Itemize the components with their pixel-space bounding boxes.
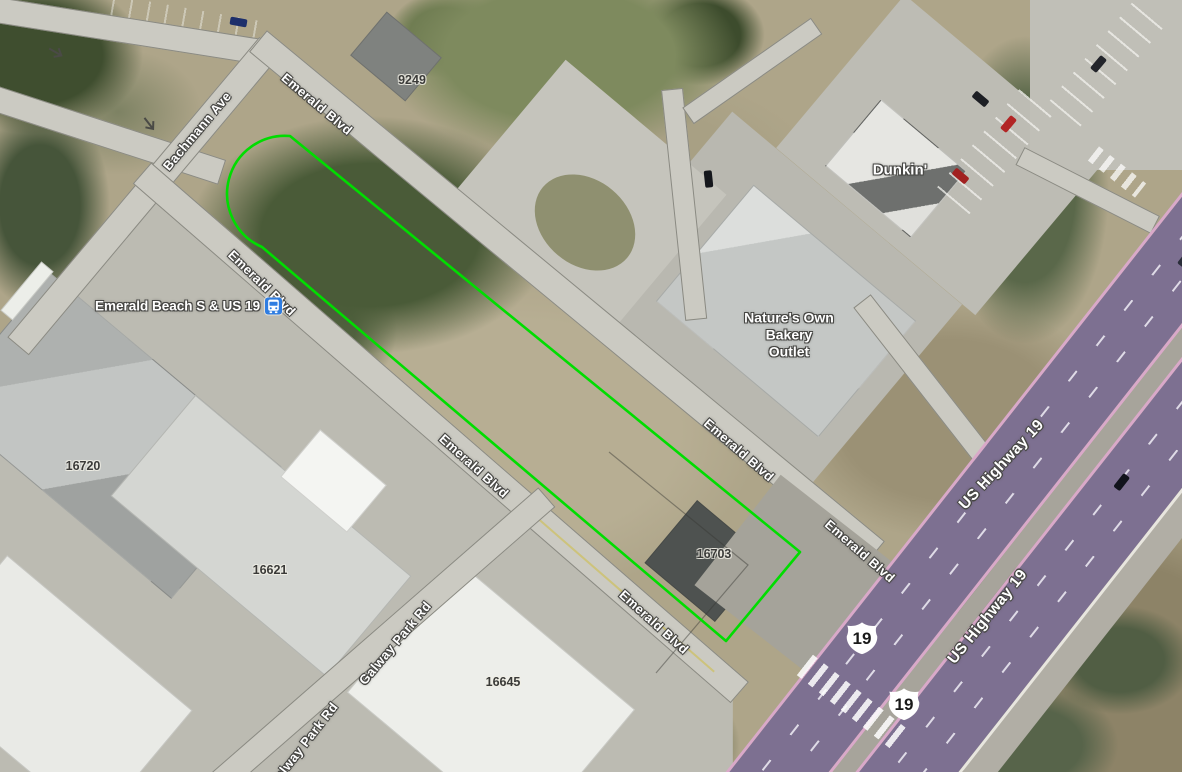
transit-stop: Emerald Beach S & US 19 [95, 298, 282, 315]
route-number: 19 [842, 619, 882, 657]
address-label-16720: 16720 [66, 459, 101, 473]
transit-stop-label: Emerald Beach S & US 19 [95, 299, 260, 314]
address-label-16621: 16621 [253, 563, 288, 577]
vehicle [704, 170, 714, 188]
us-route-19-shield-icon: 19 [842, 619, 882, 657]
us-route-19-shield-icon: 19 [884, 685, 924, 723]
poi-label-dunkin: Dunkin' [873, 162, 927, 179]
address-label-9249: 9249 [398, 73, 426, 87]
aerial-map-canvas[interactable]: Emerald Blvd Emerald Blvd Emerald Blvd E… [0, 0, 1182, 772]
address-label-16703: 16703 [697, 547, 732, 561]
poi-label-bakery: Nature's Own Bakery Outlet [744, 310, 834, 361]
route-number: 19 [884, 685, 924, 723]
bus-icon[interactable] [265, 298, 282, 315]
address-label-16645: 16645 [486, 675, 521, 689]
